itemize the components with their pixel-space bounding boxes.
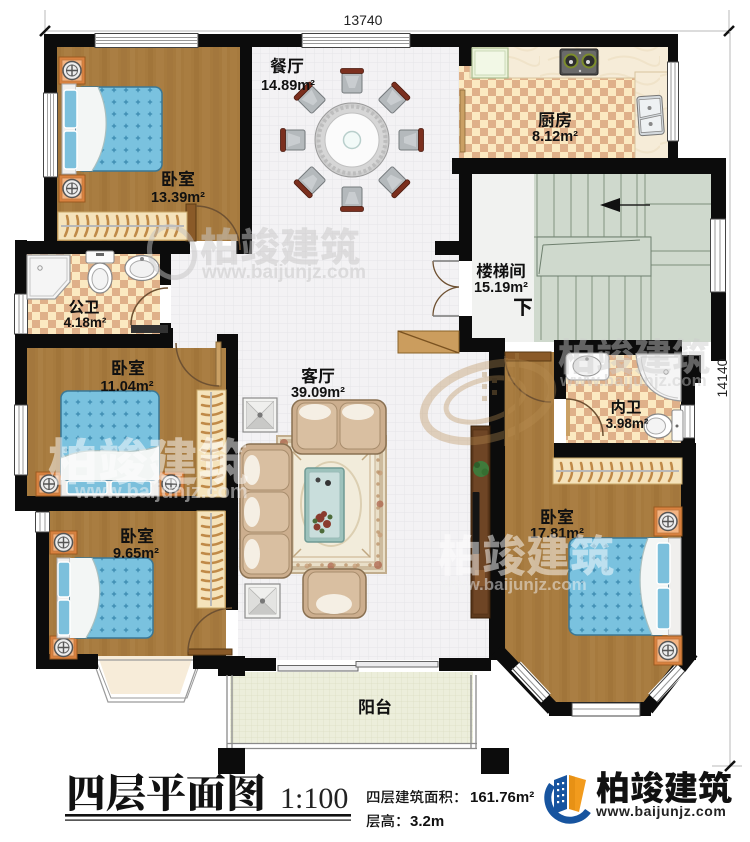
svg-text:1:100: 1:100 — [280, 782, 348, 815]
svg-text:39.09m²: 39.09m² — [291, 385, 345, 401]
svg-text:www.baijunjz.com: www.baijunjz.com — [559, 371, 707, 390]
svg-text:9.65m²: 9.65m² — [113, 546, 159, 562]
svg-text:3.2m: 3.2m — [410, 813, 444, 830]
svg-text:14140: 14140 — [714, 358, 730, 397]
svg-text:3.98m²: 3.98m² — [606, 416, 649, 431]
svg-text:8.12m²: 8.12m² — [532, 129, 578, 145]
svg-text:www.baijunjz.com: www.baijunjz.com — [439, 575, 587, 594]
svg-text:161.76m²: 161.76m² — [470, 789, 534, 806]
svg-text:www.baijunjz.com: www.baijunjz.com — [201, 262, 366, 283]
svg-text:13740: 13740 — [344, 12, 383, 28]
svg-text:11.04m²: 11.04m² — [100, 379, 153, 395]
svg-text:4.18m²: 4.18m² — [64, 315, 107, 330]
svg-text:14.89m²: 14.89m² — [261, 78, 315, 94]
svg-text:15.19m²: 15.19m² — [474, 280, 528, 296]
svg-text:13.39m²: 13.39m² — [151, 190, 205, 206]
svg-text:www.baijunjz.com: www.baijunjz.com — [74, 481, 248, 503]
svg-text:www.baijunjz.com: www.baijunjz.com — [595, 803, 726, 819]
